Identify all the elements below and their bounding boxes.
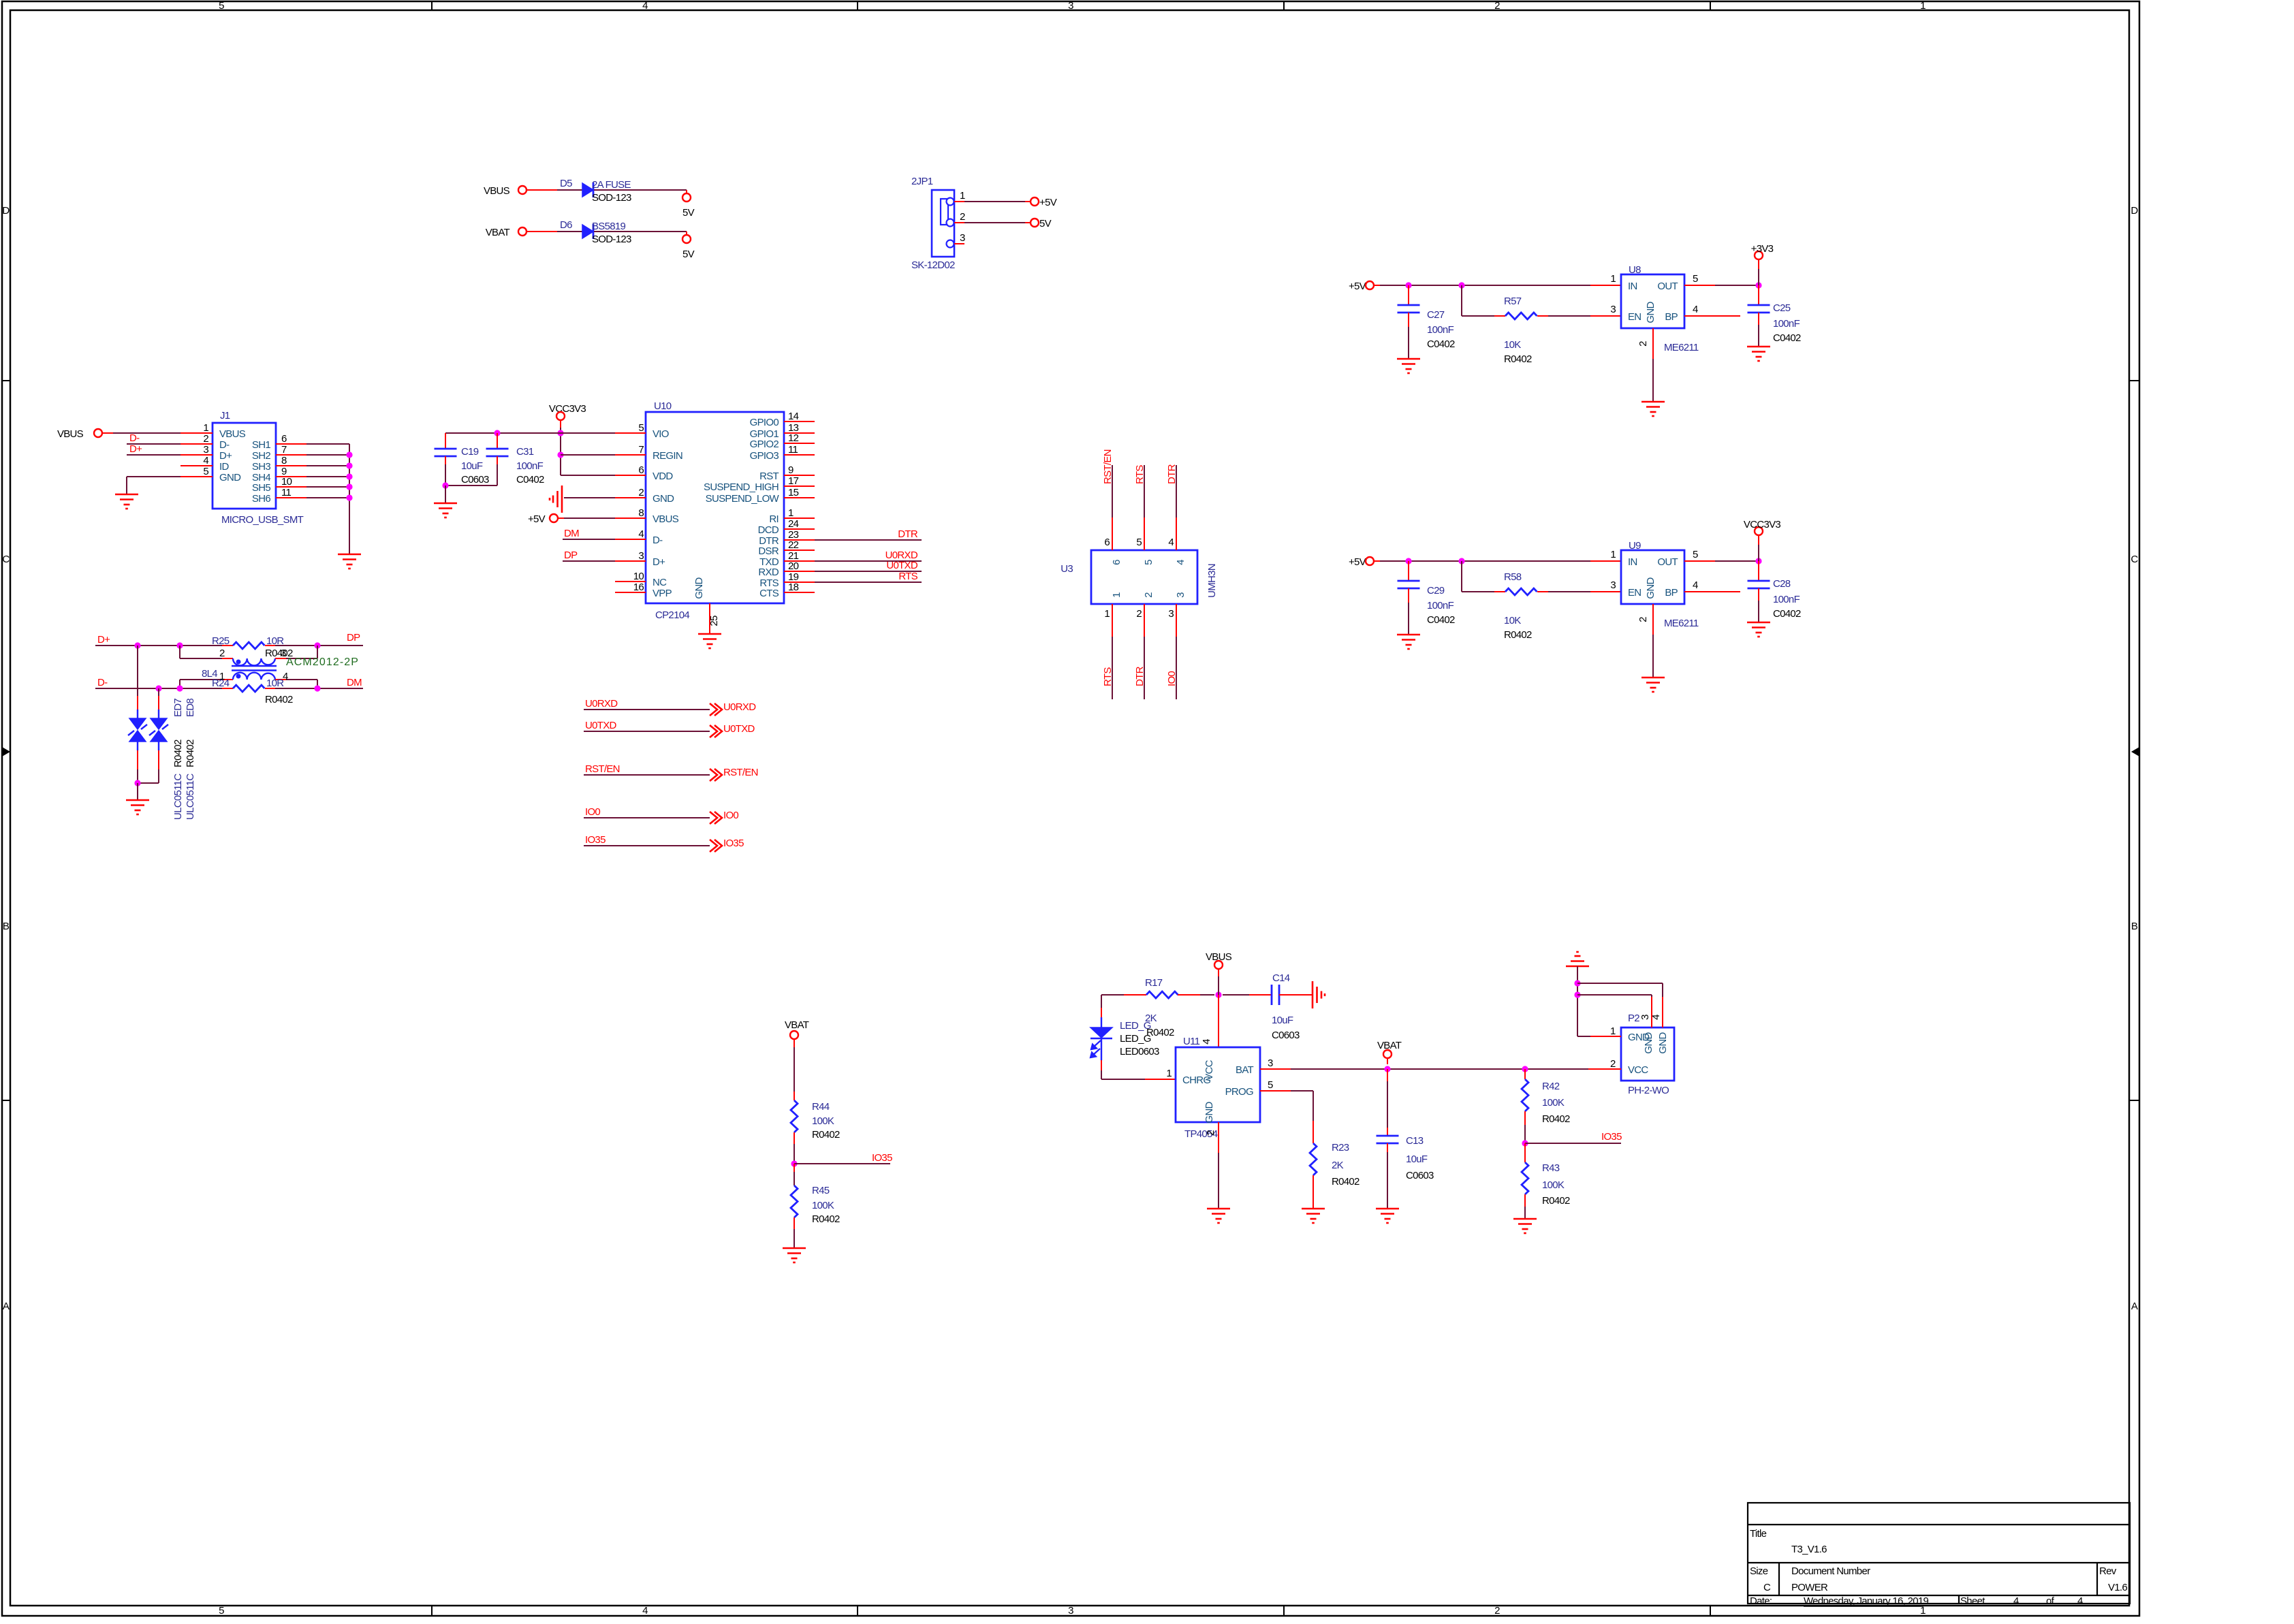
- svg-text:VBAT: VBAT: [486, 227, 510, 238]
- svg-text:5: 5: [1136, 537, 1142, 548]
- svg-text:RTS: RTS: [1102, 667, 1114, 686]
- svg-text:100nF: 100nF: [1773, 594, 1800, 605]
- svg-text:1: 1: [1920, 0, 1926, 12]
- svg-text:2: 2: [1205, 1130, 1216, 1136]
- svg-text:Size: Size: [1750, 1565, 1768, 1577]
- svg-text:1: 1: [960, 190, 965, 202]
- svg-text:GND: GND: [693, 577, 705, 599]
- svg-text:10R: 10R: [266, 678, 284, 689]
- svg-text:Rev: Rev: [2099, 1565, 2117, 1577]
- svg-text:RXD: RXD: [758, 567, 779, 578]
- svg-text:3: 3: [1610, 579, 1616, 591]
- svg-text:R17: R17: [1145, 977, 1163, 989]
- svg-text:2: 2: [1494, 0, 1500, 12]
- svg-text:C0402: C0402: [516, 474, 544, 485]
- svg-text:LED_G: LED_G: [1120, 1033, 1151, 1045]
- svg-text:100K: 100K: [1542, 1179, 1565, 1191]
- svg-text:2: 2: [1143, 592, 1154, 598]
- svg-text:1: 1: [1610, 273, 1616, 285]
- svg-text:IO35: IO35: [723, 838, 744, 849]
- svg-text:RST/EN: RST/EN: [723, 767, 758, 778]
- svg-text:100K: 100K: [812, 1200, 834, 1211]
- svg-text:CP2104: CP2104: [655, 609, 689, 621]
- svg-text:VBUS: VBUS: [653, 513, 679, 525]
- svg-text:5: 5: [1268, 1079, 1273, 1091]
- svg-text:IO0: IO0: [1166, 671, 1178, 686]
- svg-text:17: 17: [788, 475, 799, 487]
- svg-text:IO35: IO35: [585, 834, 606, 846]
- svg-text:VBUS: VBUS: [57, 428, 84, 440]
- svg-text:RST: RST: [759, 471, 779, 482]
- svg-text:3: 3: [203, 444, 208, 456]
- svg-text:RI: RI: [769, 513, 779, 525]
- svg-text:GND: GND: [219, 472, 241, 483]
- svg-text:V1.6: V1.6: [2108, 1582, 2127, 1593]
- svg-text:C0603: C0603: [461, 474, 489, 485]
- svg-text:11: 11: [281, 487, 292, 498]
- svg-text:10uF: 10uF: [1272, 1015, 1293, 1026]
- svg-text:6: 6: [1111, 560, 1122, 565]
- svg-text:IO0: IO0: [723, 810, 738, 821]
- svg-text:C: C: [2131, 554, 2138, 565]
- svg-text:2: 2: [1494, 1605, 1500, 1617]
- svg-text:VBUS: VBUS: [484, 185, 510, 197]
- svg-text:C27: C27: [1427, 309, 1445, 321]
- svg-text:C: C: [1763, 1582, 1771, 1593]
- svg-text:2: 2: [1610, 1058, 1616, 1070]
- svg-text:Wednesday, January 16, 2019: Wednesday, January 16, 2019: [1804, 1595, 1929, 1607]
- svg-text:D-: D-: [653, 535, 663, 546]
- svg-text:R42: R42: [1542, 1081, 1560, 1092]
- svg-text:5V: 5V: [1039, 218, 1052, 229]
- svg-text:ACM2012-2P: ACM2012-2P: [286, 656, 359, 668]
- svg-text:Sheet: Sheet: [1960, 1595, 1985, 1607]
- svg-text:7: 7: [638, 444, 644, 456]
- svg-text:B: B: [3, 921, 10, 932]
- svg-text:3: 3: [638, 550, 644, 562]
- svg-text:OUT: OUT: [1657, 281, 1678, 292]
- svg-text:B: B: [2131, 921, 2138, 932]
- svg-text:2: 2: [1136, 608, 1142, 620]
- svg-text:3: 3: [1175, 592, 1187, 598]
- svg-text:RTS: RTS: [1134, 465, 1146, 484]
- svg-text:SOD-123: SOD-123: [592, 234, 631, 245]
- svg-text:RST/EN: RST/EN: [585, 763, 620, 775]
- svg-text:5: 5: [1143, 560, 1154, 565]
- svg-text:CTS: CTS: [759, 588, 779, 599]
- svg-text:2JP1: 2JP1: [911, 176, 933, 187]
- svg-text:12: 12: [788, 432, 799, 444]
- svg-text:+5V: +5V: [1349, 281, 1366, 292]
- svg-text:3: 3: [1068, 0, 1073, 12]
- svg-text:PH-2-WO: PH-2-WO: [1628, 1085, 1669, 1096]
- svg-text:D-: D-: [219, 439, 230, 451]
- svg-text:R25: R25: [212, 635, 230, 647]
- svg-text:C19: C19: [461, 446, 479, 458]
- svg-text:DP: DP: [564, 550, 578, 561]
- svg-text:SH6: SH6: [252, 493, 270, 505]
- svg-text:5V: 5V: [682, 249, 695, 260]
- svg-text:2: 2: [1637, 341, 1649, 347]
- svg-text:DTR: DTR: [1166, 464, 1178, 484]
- svg-text:EN: EN: [1628, 587, 1641, 599]
- svg-text:10K: 10K: [1504, 615, 1521, 626]
- svg-text:2: 2: [1637, 617, 1649, 622]
- svg-text:R0402: R0402: [1542, 1195, 1570, 1207]
- svg-text:8: 8: [281, 455, 287, 466]
- svg-text:R23: R23: [1332, 1142, 1349, 1153]
- svg-text:D-: D-: [97, 677, 108, 688]
- svg-text:LED0603: LED0603: [1120, 1046, 1159, 1057]
- svg-text:18: 18: [788, 582, 799, 593]
- svg-text:4: 4: [1201, 1039, 1212, 1045]
- svg-text:22: 22: [788, 539, 799, 551]
- svg-text:10uF: 10uF: [1406, 1153, 1428, 1165]
- svg-text:3: 3: [1268, 1057, 1273, 1069]
- svg-text:IN: IN: [1628, 556, 1637, 568]
- svg-text:1: 1: [1104, 608, 1110, 620]
- svg-text:GND: GND: [1645, 577, 1656, 599]
- svg-text:10R: 10R: [266, 635, 284, 647]
- svg-text:100K: 100K: [812, 1115, 834, 1127]
- svg-text:IO0: IO0: [585, 806, 600, 818]
- svg-text:VBAT: VBAT: [785, 1019, 809, 1031]
- svg-text:BP: BP: [1665, 311, 1678, 323]
- svg-text:1: 1: [1610, 1025, 1616, 1037]
- svg-text:1: 1: [1166, 1068, 1172, 1079]
- svg-text:R0402: R0402: [172, 739, 184, 767]
- svg-text:D: D: [2131, 205, 2138, 217]
- svg-text:3: 3: [1068, 1605, 1073, 1617]
- svg-text:SH3: SH3: [252, 461, 270, 473]
- svg-text:R0402: R0402: [185, 739, 196, 767]
- svg-text:D6: D6: [560, 219, 572, 231]
- svg-text:U0RXD: U0RXD: [723, 701, 756, 713]
- svg-text:1: 1: [1111, 592, 1122, 598]
- svg-text:DP: DP: [347, 632, 360, 643]
- svg-text:R0402: R0402: [1332, 1176, 1360, 1188]
- svg-text:C25: C25: [1773, 302, 1791, 314]
- svg-text:GND: GND: [1643, 1032, 1654, 1054]
- svg-text:100K: 100K: [1542, 1097, 1565, 1109]
- svg-text:U0RXD: U0RXD: [585, 698, 618, 710]
- svg-text:GPIO0: GPIO0: [750, 417, 779, 428]
- svg-text:U0TXD: U0TXD: [723, 723, 755, 735]
- svg-text:20: 20: [788, 560, 799, 572]
- svg-text:C31: C31: [516, 446, 534, 458]
- svg-text:6: 6: [1104, 537, 1110, 548]
- svg-text:4: 4: [638, 528, 644, 540]
- svg-text:GND: GND: [1204, 1102, 1215, 1124]
- svg-text:VCC3V3: VCC3V3: [1744, 519, 1781, 530]
- svg-text:D+: D+: [97, 634, 110, 646]
- svg-text:5: 5: [638, 422, 644, 434]
- svg-text:2: 2: [960, 211, 965, 223]
- svg-text:10: 10: [633, 571, 644, 582]
- svg-text:RTS: RTS: [898, 571, 917, 582]
- svg-text:5V: 5V: [682, 207, 695, 219]
- svg-text:of: of: [2046, 1595, 2055, 1607]
- svg-text:R57: R57: [1504, 296, 1522, 307]
- svg-text:4: 4: [203, 455, 208, 466]
- svg-text:8: 8: [638, 507, 644, 519]
- svg-text:UMH3N: UMH3N: [1206, 564, 1218, 598]
- svg-text:4: 4: [642, 0, 648, 12]
- svg-text:2: 2: [203, 433, 208, 445]
- svg-text:DM: DM: [564, 528, 579, 539]
- svg-text:A: A: [2131, 1301, 2138, 1312]
- svg-text:PROG: PROG: [1225, 1086, 1253, 1098]
- svg-text:T3_V1.6: T3_V1.6: [1791, 1544, 1827, 1555]
- svg-text:SH1: SH1: [252, 439, 270, 451]
- svg-text:C13: C13: [1406, 1135, 1424, 1147]
- svg-text:C28: C28: [1773, 578, 1791, 590]
- svg-text:VDD: VDD: [653, 471, 673, 482]
- svg-text:1: 1: [203, 422, 208, 434]
- svg-text:A: A: [3, 1301, 10, 1312]
- svg-text:4: 4: [1168, 537, 1174, 548]
- svg-text:J1: J1: [220, 410, 230, 421]
- svg-text:C0402: C0402: [1773, 332, 1801, 344]
- svg-text:ID: ID: [219, 461, 229, 473]
- svg-text:POWER: POWER: [1791, 1582, 1828, 1593]
- svg-text:C0603: C0603: [1272, 1030, 1300, 1041]
- svg-text:ED8: ED8: [185, 699, 196, 717]
- svg-text:C0603: C0603: [1406, 1170, 1434, 1181]
- svg-text:NC: NC: [653, 577, 667, 588]
- svg-text:4: 4: [2013, 1595, 2019, 1607]
- svg-text:R43: R43: [1542, 1162, 1560, 1174]
- svg-text:BP: BP: [1665, 587, 1678, 599]
- svg-text:9: 9: [788, 464, 794, 476]
- svg-text:D+: D+: [219, 450, 232, 462]
- svg-text:C0402: C0402: [1427, 614, 1455, 626]
- svg-text:1: 1: [1610, 549, 1616, 560]
- svg-text:14: 14: [788, 411, 799, 422]
- svg-text:15: 15: [788, 487, 799, 498]
- svg-text:ULC0511C: ULC0511C: [185, 774, 196, 820]
- svg-text:4: 4: [1175, 560, 1187, 565]
- svg-text:10uF: 10uF: [461, 460, 483, 472]
- svg-text:C0402: C0402: [1427, 338, 1455, 350]
- svg-text:100nF: 100nF: [1427, 324, 1454, 336]
- svg-text:EN: EN: [1628, 311, 1641, 323]
- svg-text:C0402: C0402: [1773, 608, 1801, 620]
- svg-text:2K: 2K: [1332, 1160, 1344, 1171]
- svg-text:11: 11: [788, 444, 798, 456]
- svg-text:D: D: [2, 205, 10, 217]
- svg-text:100nF: 100nF: [1427, 600, 1454, 611]
- svg-text:SUSPEND_LOW: SUSPEND_LOW: [706, 493, 780, 505]
- svg-text:SH5: SH5: [252, 482, 270, 494]
- svg-text:DSR: DSR: [758, 545, 779, 557]
- svg-text:DM: DM: [347, 677, 362, 688]
- svg-text:6: 6: [281, 433, 287, 445]
- svg-text:SH2: SH2: [252, 450, 270, 462]
- svg-text:Date:: Date:: [1750, 1595, 1772, 1607]
- svg-text:R0402: R0402: [1542, 1113, 1570, 1125]
- svg-text:R58: R58: [1504, 571, 1522, 583]
- svg-text:MICRO_USB_SMT: MICRO_USB_SMT: [221, 514, 304, 526]
- svg-text:5: 5: [219, 0, 224, 12]
- svg-text:3: 3: [1610, 304, 1616, 315]
- svg-text:4: 4: [1693, 579, 1698, 591]
- svg-text:C14: C14: [1272, 972, 1290, 984]
- svg-text:OUT: OUT: [1657, 556, 1678, 568]
- svg-text:SK-12D02: SK-12D02: [911, 259, 955, 271]
- svg-text:ME6211: ME6211: [1664, 342, 1699, 353]
- svg-text:VBUS: VBUS: [219, 428, 246, 440]
- svg-text:16: 16: [633, 582, 644, 593]
- svg-text:DCD: DCD: [758, 524, 779, 536]
- svg-text:ED7: ED7: [172, 699, 184, 717]
- svg-text:R0402: R0402: [1504, 353, 1532, 365]
- svg-text:BAT: BAT: [1236, 1064, 1253, 1076]
- svg-text:5: 5: [219, 1605, 224, 1617]
- svg-text:D+: D+: [129, 443, 142, 455]
- svg-text:+3V3: +3V3: [1751, 243, 1774, 255]
- svg-text:D5: D5: [560, 178, 572, 189]
- svg-text:GND: GND: [653, 493, 674, 505]
- svg-text:R0402: R0402: [812, 1129, 840, 1141]
- svg-text:100nF: 100nF: [1773, 318, 1800, 330]
- svg-text:25: 25: [708, 616, 720, 626]
- svg-text:U10: U10: [654, 400, 672, 412]
- svg-text:100nF: 100nF: [516, 460, 544, 472]
- svg-text:LED_G: LED_G: [1120, 1020, 1151, 1032]
- svg-text:SUSPEND_HIGH: SUSPEND_HIGH: [704, 481, 779, 493]
- svg-text:C: C: [2, 554, 10, 565]
- svg-text:DTR: DTR: [898, 528, 918, 540]
- svg-text:10K: 10K: [1504, 339, 1521, 351]
- svg-text:U0TXD: U0TXD: [886, 560, 918, 571]
- svg-text:SOD-123: SOD-123: [592, 192, 631, 204]
- svg-text:2: 2: [638, 487, 644, 498]
- svg-text:4: 4: [642, 1605, 648, 1617]
- svg-text:D-: D-: [129, 432, 140, 444]
- svg-text:VCC3V3: VCC3V3: [549, 403, 586, 415]
- svg-text:7: 7: [281, 444, 287, 456]
- svg-text:Document Number: Document Number: [1791, 1565, 1870, 1577]
- svg-text:REGIN: REGIN: [653, 450, 682, 462]
- svg-text:R24: R24: [212, 678, 230, 689]
- svg-text:5: 5: [1693, 273, 1698, 285]
- svg-text:IO35: IO35: [872, 1152, 892, 1164]
- svg-text:U9: U9: [1629, 540, 1641, 552]
- svg-text:10: 10: [281, 476, 292, 488]
- svg-text:C29: C29: [1427, 585, 1445, 596]
- svg-text:D+: D+: [653, 556, 665, 568]
- svg-text:VIO: VIO: [653, 428, 669, 440]
- svg-text:P2: P2: [1628, 1013, 1639, 1024]
- svg-text:ME6211: ME6211: [1664, 618, 1699, 629]
- svg-text:2: 2: [219, 648, 225, 659]
- svg-text:U0TXD: U0TXD: [585, 720, 617, 731]
- svg-text:3: 3: [1639, 1015, 1651, 1020]
- svg-text:6: 6: [638, 464, 644, 476]
- svg-text:3: 3: [1168, 608, 1174, 620]
- svg-text:GND: GND: [1645, 302, 1656, 323]
- svg-text:Title: Title: [1750, 1528, 1767, 1540]
- svg-text:IO35: IO35: [1601, 1131, 1622, 1143]
- svg-text:2A FUSE: 2A FUSE: [592, 179, 631, 191]
- svg-text:VPP: VPP: [653, 588, 672, 599]
- svg-text:IN: IN: [1628, 281, 1637, 292]
- svg-text:5: 5: [203, 466, 208, 477]
- svg-text:GND: GND: [1657, 1032, 1669, 1054]
- svg-text:ULC0511C: ULC0511C: [172, 774, 184, 820]
- svg-text:VCC: VCC: [1628, 1064, 1648, 1076]
- svg-text:R0402: R0402: [812, 1213, 840, 1225]
- svg-text:U11: U11: [1183, 1036, 1200, 1047]
- svg-text:R45: R45: [812, 1185, 830, 1196]
- svg-text:R44: R44: [812, 1101, 830, 1113]
- svg-text:3: 3: [281, 648, 286, 659]
- svg-text:3: 3: [960, 232, 965, 244]
- svg-text:U8: U8: [1629, 264, 1641, 276]
- svg-text:DTR: DTR: [1134, 666, 1146, 686]
- svg-text:GPIO3: GPIO3: [750, 450, 779, 462]
- svg-text:GPIO2: GPIO2: [750, 439, 779, 450]
- svg-text:R0402: R0402: [1504, 629, 1532, 641]
- svg-text:+5V: +5V: [1349, 556, 1366, 568]
- svg-text:R0402: R0402: [265, 694, 293, 705]
- svg-text:4: 4: [1693, 304, 1698, 315]
- svg-text:RST/EN: RST/EN: [1102, 449, 1114, 484]
- svg-text:4: 4: [2077, 1595, 2083, 1607]
- svg-text:1: 1: [788, 507, 794, 519]
- svg-text:BS5819: BS5819: [592, 221, 626, 232]
- svg-text:24: 24: [788, 518, 799, 530]
- svg-text:5: 5: [1693, 549, 1698, 560]
- svg-text:+5V: +5V: [1039, 197, 1057, 208]
- svg-text:+5V: +5V: [528, 513, 546, 525]
- svg-text:VCC: VCC: [1204, 1060, 1215, 1080]
- svg-text:U3: U3: [1060, 563, 1073, 575]
